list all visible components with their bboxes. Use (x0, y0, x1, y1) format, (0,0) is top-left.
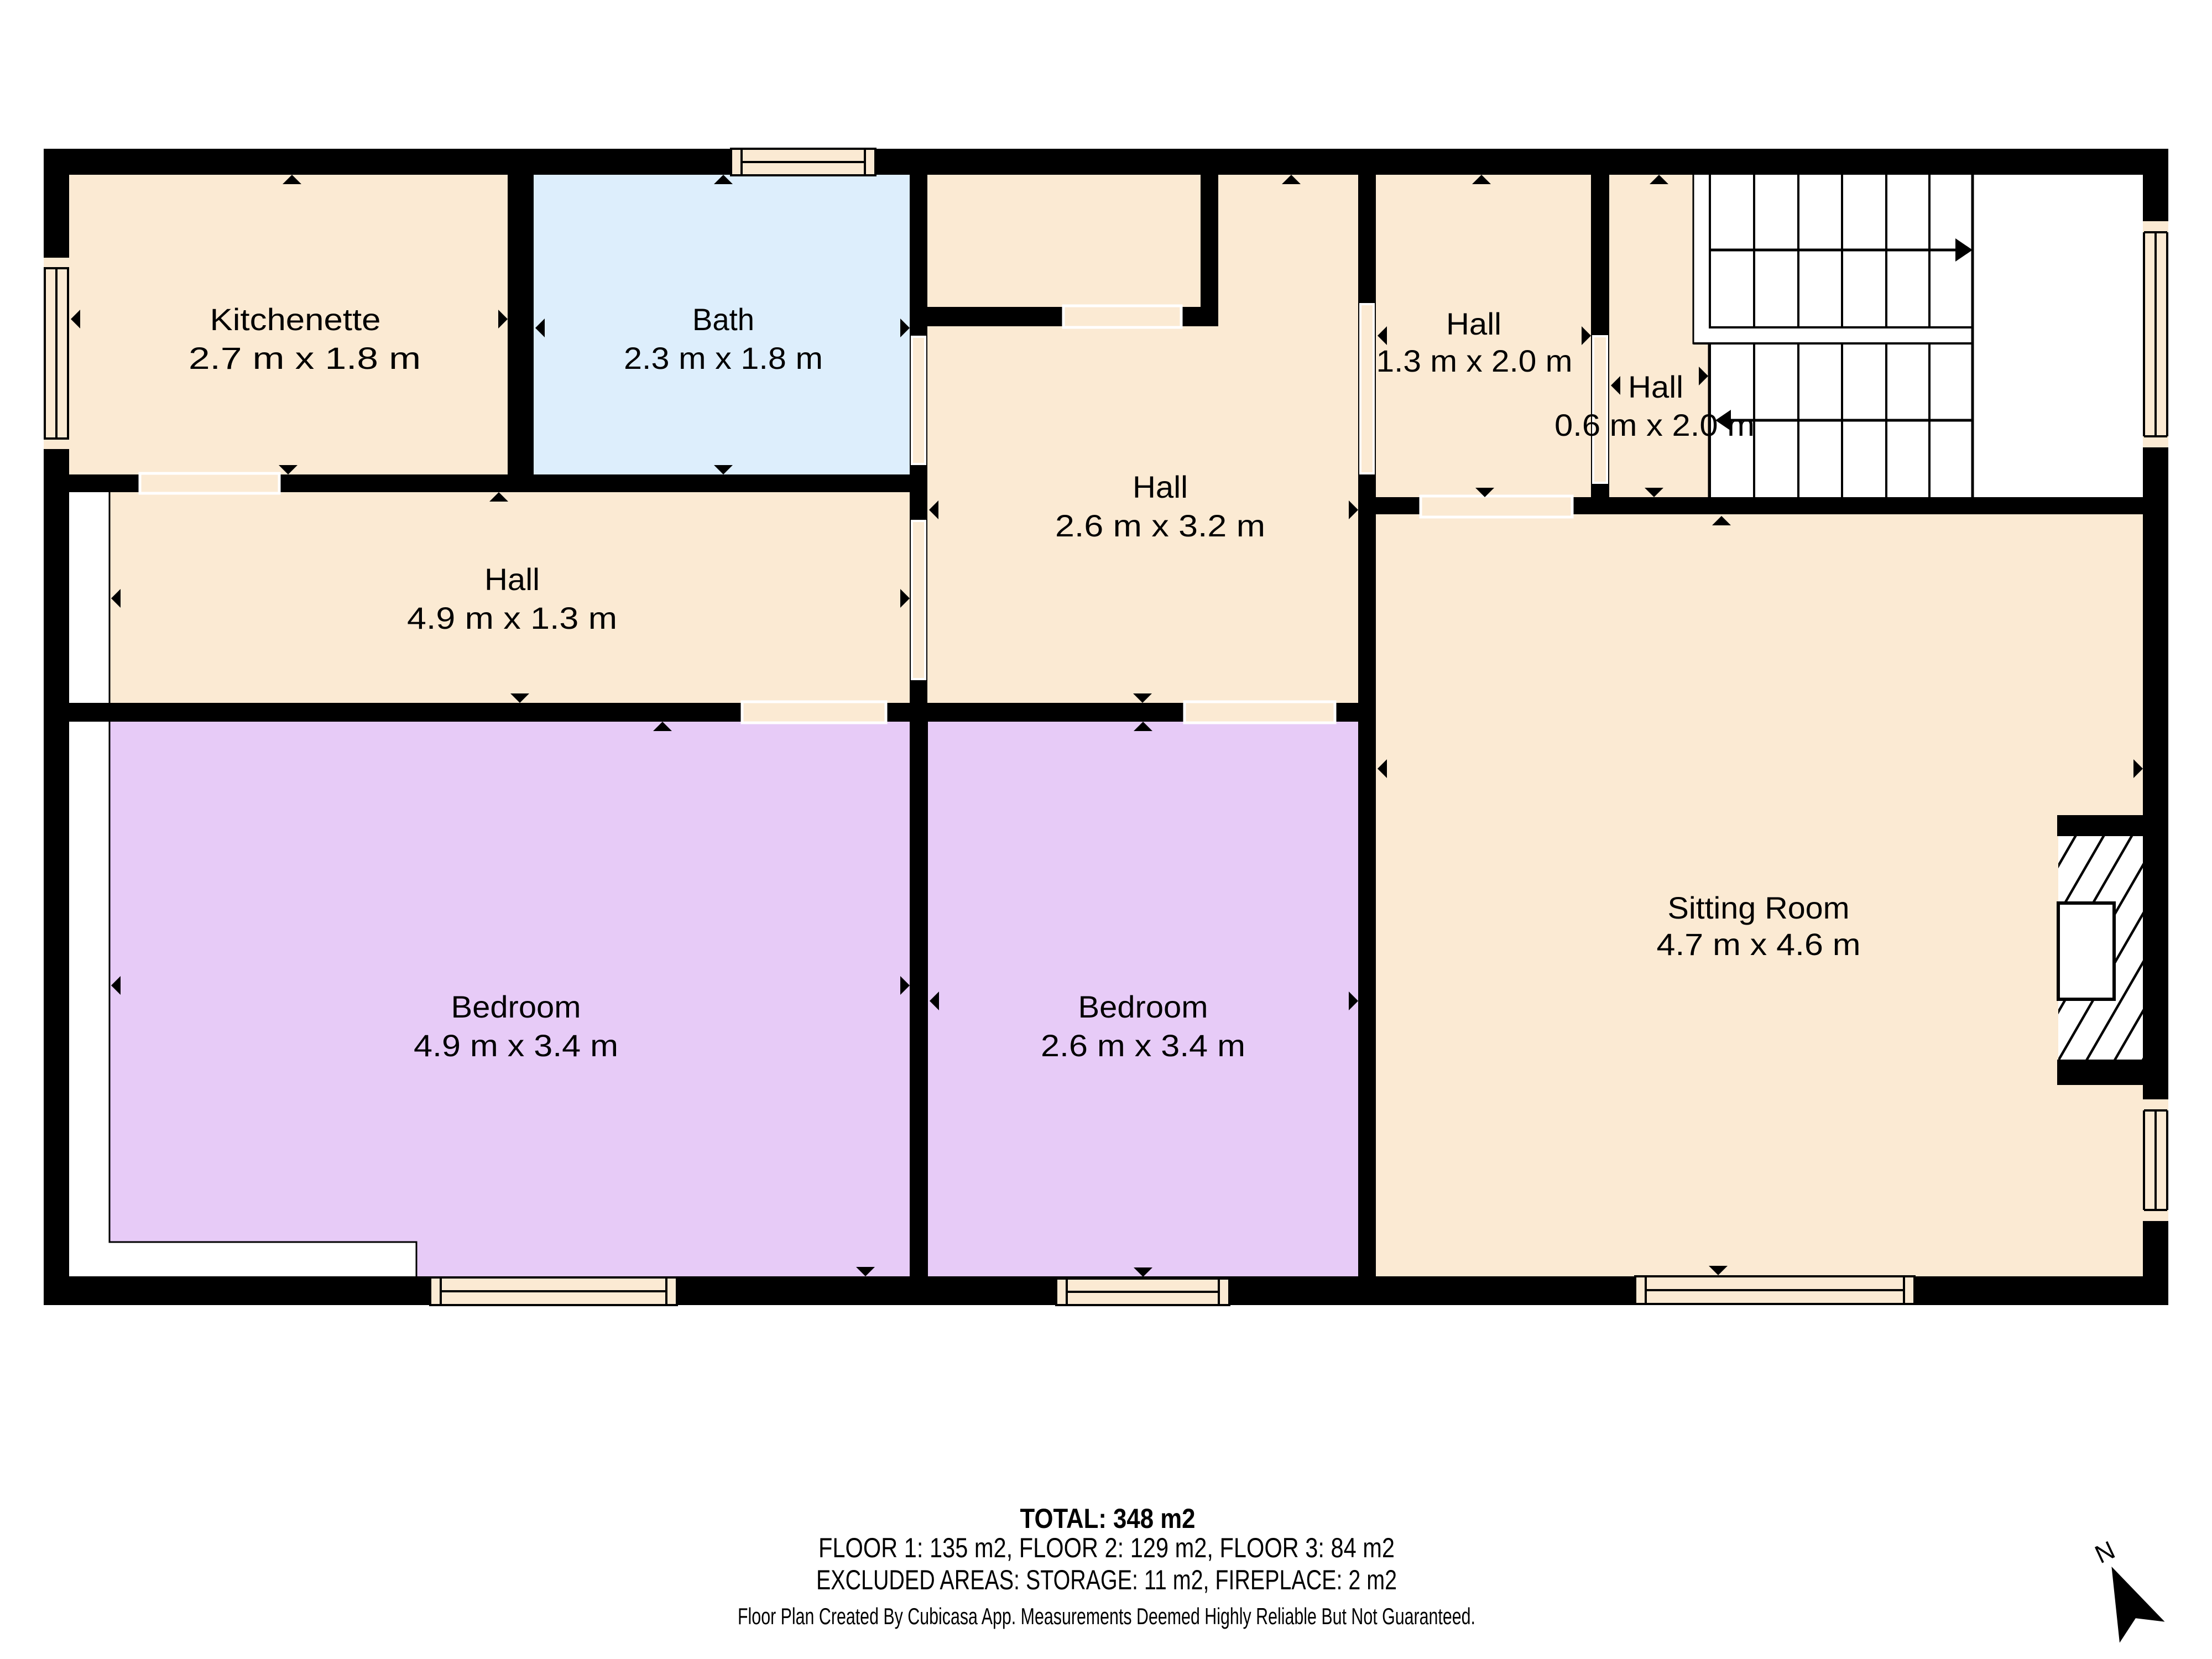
svg-text:2.6 m x 3.2 m: 2.6 m x 3.2 m (1055, 508, 1265, 543)
svg-text:Hall: Hall (1628, 369, 1683, 404)
svg-text:Bedroom: Bedroom (451, 989, 581, 1024)
svg-text:4.9 m x 1.3 m: 4.9 m x 1.3 m (407, 601, 617, 635)
svg-text:EXCLUDED AREAS: STORAGE: 11 m2: EXCLUDED AREAS: STORAGE: 11 m2, FIREPLAC… (816, 1564, 1397, 1595)
svg-text:2.3 m x 1.8 m: 2.3 m x 1.8 m (624, 341, 823, 375)
svg-text:4.9 m x 3.4 m: 4.9 m x 3.4 m (414, 1028, 618, 1063)
svg-text:2.7 m x 1.8 m: 2.7 m x 1.8 m (189, 341, 421, 375)
svg-text:Bath: Bath (692, 302, 754, 337)
svg-text:Hall: Hall (484, 562, 540, 597)
svg-text:Sitting Room: Sitting Room (1668, 890, 1850, 925)
svg-text:Hall: Hall (1133, 469, 1188, 504)
svg-text:2.6 m x 3.4 m: 2.6 m x 3.4 m (1041, 1028, 1245, 1063)
svg-text:0.6 m x 2.0 m: 0.6 m x 2.0 m (1554, 408, 1755, 442)
svg-text:Kitchenette: Kitchenette (210, 302, 381, 337)
svg-text:Floor Plan Created By Cubicasa: Floor Plan Created By Cubicasa App. Meas… (738, 1603, 1475, 1629)
svg-text:Hall: Hall (1446, 306, 1501, 341)
svg-text:FLOOR 1: 135 m2, FLOOR 2: 129: FLOOR 1: 135 m2, FLOOR 2: 129 m2, FLOOR … (818, 1532, 1395, 1563)
svg-text:TOTAL: 348 m2: TOTAL: 348 m2 (1020, 1503, 1196, 1534)
svg-text:1.3 m x 2.0 m: 1.3 m x 2.0 m (1376, 343, 1573, 378)
svg-text:4.7 m x 4.6 m: 4.7 m x 4.6 m (1657, 927, 1861, 962)
svg-text:Bedroom: Bedroom (1078, 989, 1208, 1024)
